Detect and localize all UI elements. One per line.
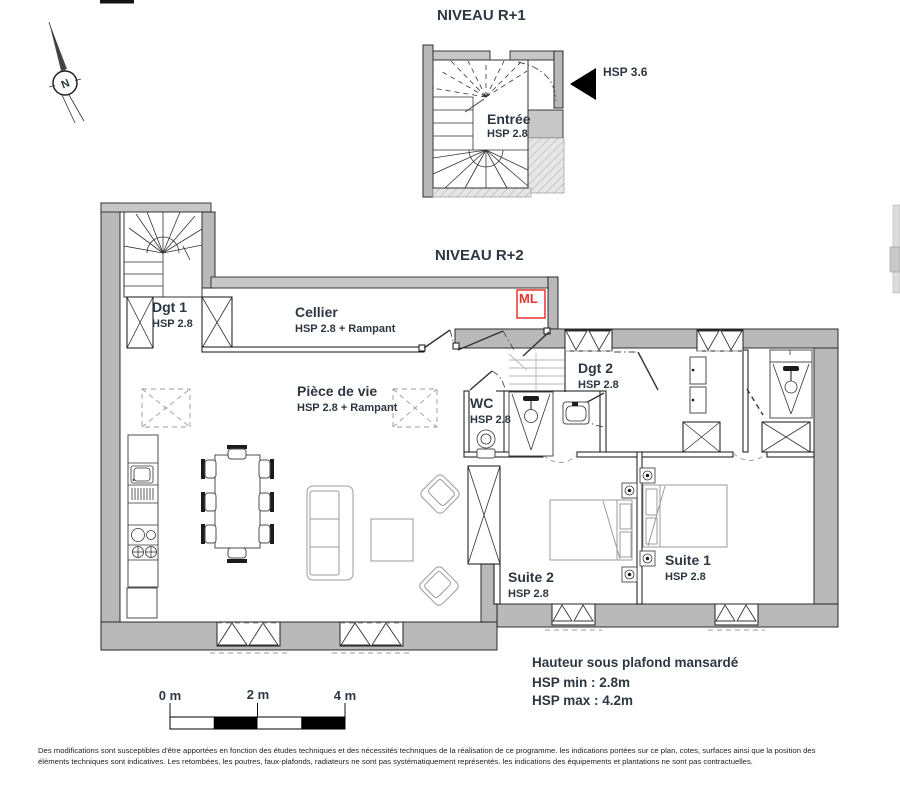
scale-0m: 0 m (159, 688, 181, 703)
r1-title: NIVEAU R+1 (437, 7, 526, 24)
note-line2: HSP min : 2.8m (532, 675, 630, 690)
kitchen-counter (127, 435, 158, 618)
footer-line2: éléments techniques sont indicatives. Le… (38, 757, 753, 766)
label-cellier: Cellier (295, 304, 338, 320)
roof-window-top-2 (697, 330, 743, 351)
label-suite1: Suite 1 (665, 552, 711, 568)
bed-suite2 (550, 500, 632, 560)
floor-plan-drawing: N NIVEAU R+1 (0, 0, 900, 800)
scale-2m: 2 m (247, 687, 269, 702)
r1-entree-label: Entrée (487, 111, 531, 127)
label-dgt1: Dgt 1 (152, 299, 187, 315)
note-line3: HSP max : 4.2m (532, 693, 633, 708)
sofa (307, 486, 353, 580)
r1-hsp-pointer-label: HSP 3.6 (603, 65, 648, 79)
washbasin-suite2 (563, 402, 589, 424)
label-wc: WC (470, 395, 493, 411)
ml-label: ML (519, 291, 538, 306)
label-cellier-hsp: HSP 2.8 + Rampant (295, 323, 396, 335)
footer-line1: Des modifications sont susceptibles d'êt… (38, 746, 816, 755)
label-dgt2: Dgt 2 (578, 360, 613, 376)
r2-staircase (124, 212, 202, 297)
label-suite1-hsp: HSP 2.8 (665, 571, 706, 583)
bed-suite1 (643, 485, 727, 547)
label-suite2: Suite 2 (508, 569, 554, 585)
cropped-logo-fragment (100, 0, 134, 4)
r1-entree-hsp: HSP 2.8 (487, 128, 528, 140)
washing-machine-symbol: ML (517, 290, 545, 318)
scale-4m: 4 m (334, 688, 356, 703)
shower-suite2 (509, 392, 553, 456)
label-piece-de-vie: Pièce de vie (297, 383, 377, 399)
label-piece-de-vie-hsp: HSP 2.8 + Rampant (297, 402, 398, 414)
shower-suite1 (770, 350, 812, 418)
note-line1: Hauteur sous plafond mansardé (532, 655, 739, 670)
label-wc-hsp: HSP 2.8 (470, 414, 511, 426)
label-dgt2-hsp: HSP 2.8 (578, 379, 619, 391)
label-suite2-hsp: HSP 2.8 (508, 588, 549, 600)
floor-plan-page: N NIVEAU R+1 (0, 0, 900, 800)
r2-title: NIVEAU R+2 (435, 247, 524, 264)
roof-window-top-1 (565, 330, 612, 351)
label-dgt1-hsp: HSP 2.8 (152, 318, 193, 330)
